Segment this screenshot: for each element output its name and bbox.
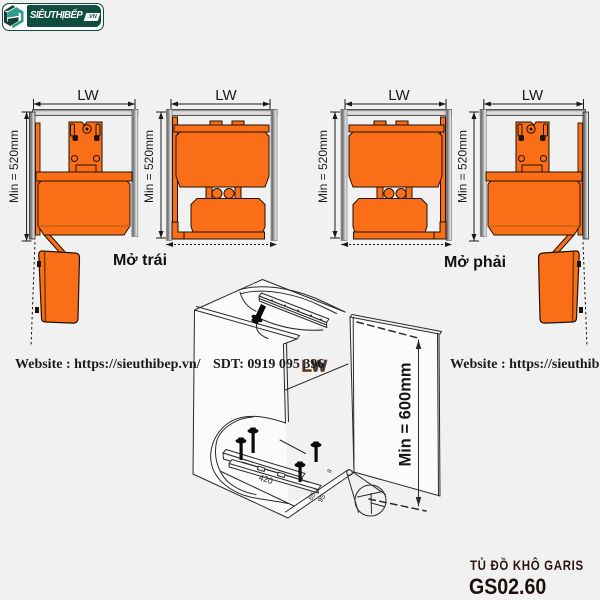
svg-text:Min = 600mm: Min = 600mm bbox=[397, 362, 415, 466]
svg-text:8: 8 bbox=[327, 468, 334, 475]
svg-text:LW: LW bbox=[522, 87, 544, 104]
svg-text:Min = 520mm: Min = 520mm bbox=[7, 130, 21, 203]
svg-text:LW: LW bbox=[77, 87, 99, 104]
svg-text:Min = 520mm: Min = 520mm bbox=[316, 130, 330, 203]
svg-text:Min = 520mm: Min = 520mm bbox=[456, 130, 470, 203]
svg-text:Min = 520mm: Min = 520mm bbox=[142, 130, 156, 203]
svg-text:LW: LW bbox=[215, 87, 237, 104]
svg-text:LW: LW bbox=[388, 87, 410, 104]
